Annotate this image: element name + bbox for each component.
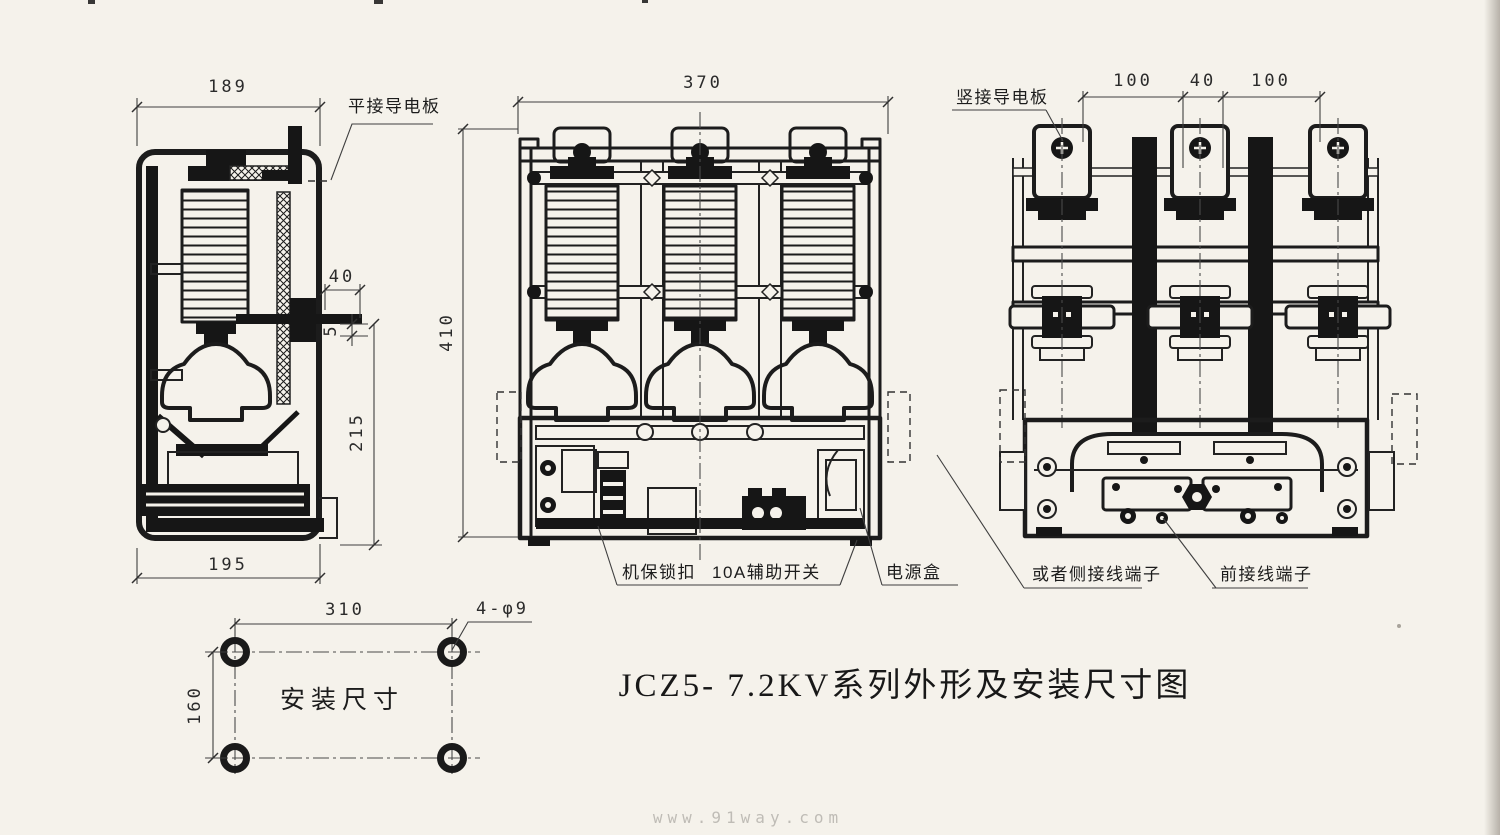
dim-189: 189: [208, 77, 248, 97]
aux-switch-label: 10A辅助开关: [712, 563, 821, 582]
flat-plate-callout: 平接导电板: [308, 97, 441, 181]
dim-310: 310: [325, 600, 365, 620]
front-view: [497, 112, 910, 560]
dim-410: 410: [437, 312, 457, 352]
engineering-drawing: 189 40 5 215 195 平接导电板: [0, 0, 1500, 835]
flat-plate-label: 平接导电板: [348, 97, 441, 116]
mounting-label: 安装尺寸: [280, 686, 404, 714]
dim-40-side: 40: [329, 267, 355, 287]
dim-160: 160: [185, 685, 205, 725]
drawing-sheet: 189 40 5 215 195 平接导电板: [0, 0, 1500, 835]
dim-215: 215: [347, 412, 367, 452]
watermark: www.91way.com: [653, 808, 843, 827]
dim-100-left: 100: [1113, 71, 1153, 91]
scan-edge-shadow: [1484, 0, 1500, 835]
power-box-label: 电源盒: [886, 563, 942, 582]
dim-40-rear: 40: [1190, 71, 1216, 91]
mech-lock-label: 机保锁扣: [622, 563, 696, 582]
dim-100-right: 100: [1251, 71, 1291, 91]
hole-spec-label: 4-φ9: [476, 599, 529, 619]
dim-5: 5: [321, 323, 341, 336]
dim-195: 195: [208, 555, 248, 575]
rear-view: [1000, 118, 1417, 536]
vertical-plate-label: 竖接导电板: [956, 88, 1049, 107]
drawing-title: JCZ5- 7.2KV系列外形及安装尺寸图: [619, 667, 1192, 704]
dim-370: 370: [683, 73, 723, 93]
side-terminal-label: 或者侧接线端子: [1032, 565, 1162, 584]
mounting-diagram: 310 160 4-φ9 安装尺寸: [185, 599, 532, 774]
front-terminal-label: 前接线端子: [1220, 565, 1313, 584]
